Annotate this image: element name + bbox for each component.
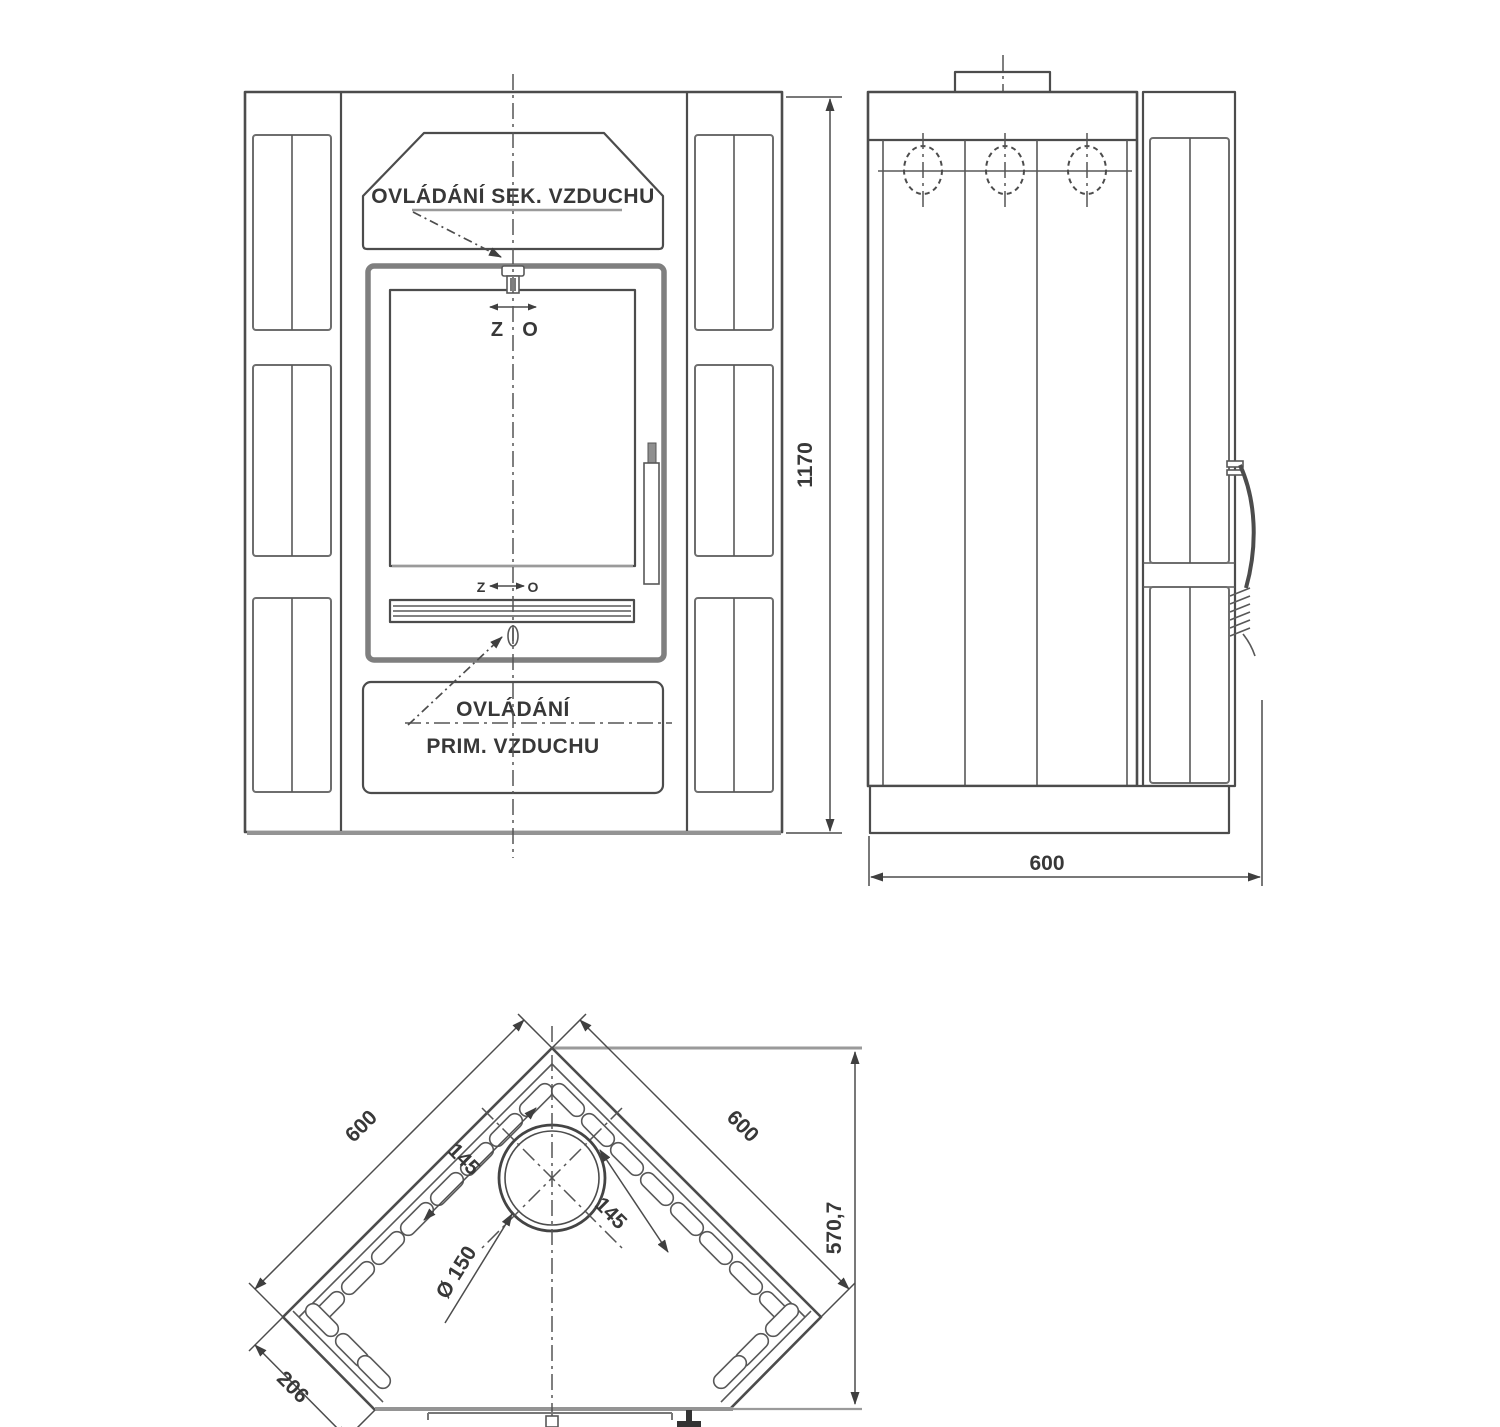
- handle-pin: [648, 443, 656, 464]
- extension-line: [341, 1410, 375, 1427]
- front-depth-dimension-value: 570,7: [823, 1202, 846, 1255]
- door-handle: [644, 443, 659, 584]
- back-right-dimension-value: 600: [722, 1106, 763, 1147]
- side-view: 600: [868, 55, 1262, 886]
- damper-bottom-open: O: [528, 579, 539, 595]
- damper-bottom-closed: Z: [477, 579, 486, 595]
- front-edge-details: [428, 1410, 701, 1427]
- side-body-outline: [868, 92, 1137, 786]
- extension-line: [552, 1014, 586, 1048]
- side-plinth: [870, 786, 1229, 833]
- extension-line: [249, 1283, 283, 1317]
- height-dimension-value: 1170: [794, 442, 817, 488]
- primary-air-grille: [390, 600, 634, 622]
- extension-line: [518, 1014, 552, 1048]
- extension-line: [249, 1317, 283, 1351]
- handle-bar: [644, 463, 659, 584]
- depth-dimension-value: 600: [1029, 852, 1064, 875]
- pillar-outline: [1143, 92, 1235, 786]
- foot-stem: [686, 1410, 692, 1422]
- top-view: Ø 150 600 600 206 570,7: [249, 1014, 862, 1427]
- front-depth-dimension: 570,7: [823, 1052, 855, 1404]
- side-front-pillar: [1143, 92, 1235, 786]
- height-dimension: 1170: [786, 97, 842, 833]
- center-knob: [546, 1416, 558, 1427]
- stove-drawing-svg: OVLÁDÁNÍ SEK. VZDUCHU Z O Z O: [0, 0, 1500, 1427]
- back-left-dimension-value: 600: [341, 1106, 382, 1147]
- foot-base: [677, 1421, 701, 1427]
- front-view: OVLÁDÁNÍ SEK. VZDUCHU Z O Z O: [245, 74, 842, 858]
- corner-cut-dimension-value: 206: [272, 1367, 313, 1408]
- damper-top-open: O: [522, 319, 538, 341]
- damper-top-closed: Z: [491, 319, 503, 341]
- latch-tail: [1243, 634, 1255, 656]
- technical-drawing-page: OVLÁDÁNÍ SEK. VZDUCHU Z O Z O: [0, 0, 1500, 1427]
- extension-line: [821, 1283, 855, 1317]
- handle-arc: [1240, 465, 1254, 588]
